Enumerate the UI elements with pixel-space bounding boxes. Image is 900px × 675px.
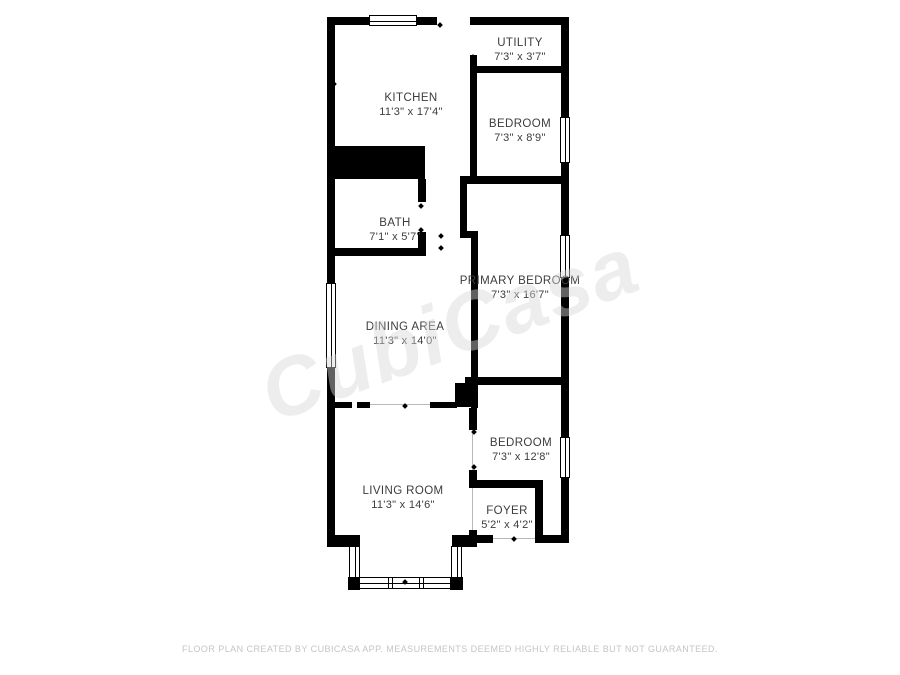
room-dimensions: 11'3" x 17'4" (379, 106, 442, 118)
room-label-utility: UTILITY 7'3" x 3'7" (494, 37, 545, 63)
room-label-bedroom-top: BEDROOM 7'3" x 8'9" (489, 118, 551, 144)
room-name: DINING AREA (366, 321, 445, 333)
disclaimer-text: FLOOR PLAN CREATED BY CUBICASA APP. MEAS… (0, 644, 900, 654)
stair-block (331, 146, 425, 179)
window (326, 283, 336, 368)
room-dimensions: 7'3" x 3'7" (494, 51, 545, 63)
wall (460, 231, 478, 238)
room-dimensions: 11'3" x 14'0" (366, 335, 445, 347)
wall (450, 577, 463, 590)
room-name: BEDROOM (490, 437, 552, 449)
wall-marker (437, 22, 443, 28)
wall (357, 402, 370, 408)
room-name: FOYER (481, 505, 532, 517)
room-label-bedroom-bottom: BEDROOM 7'3" x 12'8" (490, 437, 552, 463)
wall-marker (418, 203, 424, 209)
cubicasa-watermark: CubiCasa (249, 218, 652, 441)
wall (470, 55, 477, 184)
room-name: BATH (369, 217, 420, 229)
wall (430, 402, 457, 408)
room-dimensions: 7'3" x 12'8" (490, 451, 552, 463)
door-opening (472, 488, 473, 530)
room-dimensions: 7'3" x 16'7" (460, 289, 581, 301)
door-opening (370, 404, 430, 405)
wall (460, 176, 467, 238)
room-name: KITCHEN (379, 92, 442, 104)
room-dimensions: 11'3" x 14'6" (362, 499, 443, 511)
window (451, 546, 462, 578)
window-divider (392, 578, 393, 588)
window-divider (388, 578, 389, 588)
wall-marker (438, 245, 444, 251)
wall (470, 17, 569, 25)
window (369, 15, 417, 26)
room-label-bath: BATH 7'1" x 5'7" (369, 217, 420, 243)
wall-marker (438, 233, 444, 239)
wall (460, 176, 567, 184)
window (560, 117, 570, 163)
room-label-primary-bedroom: PRIMARY BEDROOM 7'3" x 16'7" (460, 275, 581, 301)
wall (333, 402, 352, 408)
room-name: UTILITY (494, 37, 545, 49)
wall (535, 535, 569, 543)
room-label-living-room: LIVING ROOM 11'3" x 14'6" (362, 485, 443, 511)
wall (327, 17, 335, 547)
room-dimensions: 7'3" x 8'9" (489, 132, 551, 144)
window-divider (423, 578, 424, 588)
room-name: PRIMARY BEDROOM (460, 275, 581, 287)
wall (535, 488, 543, 535)
room-dimensions: 7'1" x 5'7" (369, 231, 420, 243)
window-divider (419, 578, 420, 588)
room-dimensions: 5'2" x 4'2" (481, 519, 532, 531)
room-label-kitchen: KITCHEN 11'3" x 17'4" (379, 92, 442, 118)
wall-block (455, 383, 473, 407)
wall (418, 179, 426, 202)
floor-plan-canvas: UTILITY 7'3" x 3'7" KITCHEN 11'3" x 17'4… (0, 0, 900, 675)
room-label-foyer: FOYER 5'2" x 4'2" (481, 505, 532, 531)
room-name: LIVING ROOM (362, 485, 443, 497)
room-label-dining-area: DINING AREA 11'3" x 14'0" (366, 321, 445, 347)
window (349, 546, 360, 578)
wall (469, 408, 477, 430)
wall (469, 535, 493, 543)
window (560, 235, 570, 278)
room-name: BEDROOM (489, 118, 551, 130)
window (560, 437, 570, 478)
